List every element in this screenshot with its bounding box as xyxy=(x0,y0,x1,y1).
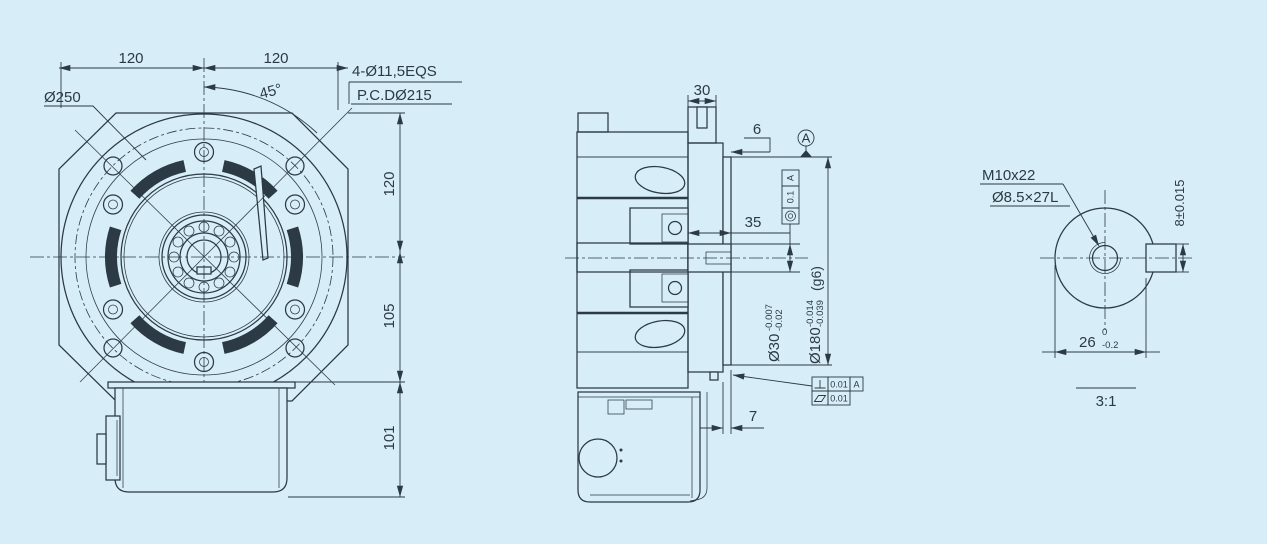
key-width-label: 8±0.015 xyxy=(1172,180,1187,227)
label-4xd11-5: 4-Ø11,5EQS xyxy=(352,63,437,80)
thread-label: M10x22 xyxy=(982,167,1035,184)
shaft-tol-lower: -0.02 xyxy=(774,309,785,331)
dim-top-width: 120 120 xyxy=(59,50,348,110)
terminal-box-section xyxy=(578,392,707,502)
dim-120-vert: 120 xyxy=(381,171,398,196)
dim-101-vert: 101 xyxy=(381,425,398,450)
shaft-dia-label: Ø30 xyxy=(766,334,783,362)
spigot-dia-label: Ø180 xyxy=(807,327,824,364)
dim-6-label: 6 xyxy=(753,121,761,138)
spigot-tol-lower: -0.039 xyxy=(815,300,826,327)
section-view: 30 6 35 7 Ø30 -0.007 xyxy=(565,82,863,502)
top-step xyxy=(578,113,608,132)
bearing-upper xyxy=(630,208,688,244)
label-holes-note: 4-Ø11,5EQS P.C.DØ215 xyxy=(349,63,462,104)
dim-45deg: 45° xyxy=(258,81,284,103)
dim-105-vert: 105 xyxy=(381,303,398,328)
spigot-step xyxy=(710,372,718,380)
dim-26-tol-lower: -0.2 xyxy=(1102,340,1118,351)
dim-7-label: 7 xyxy=(749,408,757,425)
fcf-flat-value: 0.01 xyxy=(830,394,848,404)
winding-end-lower xyxy=(633,317,687,351)
fcf-conc-datum: A xyxy=(786,175,796,181)
fcf-conc-value: 0.1 xyxy=(786,191,796,204)
dim-120-right: 120 xyxy=(263,50,288,67)
front-view: 120 120 45° Ø250 4-Ø11,5EQS P.C.DØ215 xyxy=(30,50,462,497)
fcf-perp-value: 0.01 xyxy=(830,380,848,390)
fcf-perp-datum: A xyxy=(853,380,859,390)
concentricity-icon xyxy=(786,211,796,221)
dim-shaft-dia: Ø30 -0.007 -0.02 xyxy=(731,224,800,362)
terminal-box-front xyxy=(97,382,295,492)
detail-labels: M10x22 Ø8.5×27L xyxy=(980,167,1099,246)
datum-a-letter: A xyxy=(802,131,811,146)
label-pcd215: P.C.DØ215 xyxy=(357,87,432,104)
detail-view: M10x22 Ø8.5×27L 8±0.015 26 0 -0.2 3:1 xyxy=(980,167,1192,410)
scale-note: 3:1 xyxy=(1076,388,1136,410)
motor-body-section xyxy=(577,113,688,388)
datum-a-symbol: A xyxy=(798,130,814,157)
connector xyxy=(106,416,120,480)
bearing-lower xyxy=(630,270,688,307)
dim-right-chain: 120 105 101 xyxy=(288,113,405,497)
drawing-sheet: 120 120 45° Ø250 4-Ø11,5EQS P.C.DØ215 xyxy=(0,0,1267,544)
eyebolt-hole xyxy=(697,107,707,128)
dim-6: 6 xyxy=(731,121,770,152)
scale-label: 3:1 xyxy=(1096,393,1117,410)
shaft-section xyxy=(577,243,688,272)
perpendicularity-icon xyxy=(815,380,826,388)
hole-label: Ø8.5×27L xyxy=(992,189,1058,206)
fcf-bottom: 0.01 A 0.01 xyxy=(733,375,863,405)
label-dia250: Ø250 xyxy=(44,89,81,106)
dim-30-label: 30 xyxy=(694,82,711,99)
dim-26-label: 26 xyxy=(1079,334,1096,351)
dim-35-label: 35 xyxy=(745,214,762,231)
winding-end-upper xyxy=(633,163,687,197)
technical-drawing: 120 120 45° Ø250 4-Ø11,5EQS P.C.DØ215 xyxy=(0,0,1267,544)
flatness-icon xyxy=(815,396,826,402)
dim-120-left: 120 xyxy=(118,50,143,67)
spigot-fit-label: (g6) xyxy=(808,266,824,291)
dim-35: 35 xyxy=(688,214,790,233)
dim-30: 30 xyxy=(688,82,716,107)
fcf-concentricity: A 0.1 xyxy=(782,170,799,224)
dim-26-tol-upper: 0 xyxy=(1102,327,1107,338)
diagonal-45 xyxy=(80,108,352,382)
